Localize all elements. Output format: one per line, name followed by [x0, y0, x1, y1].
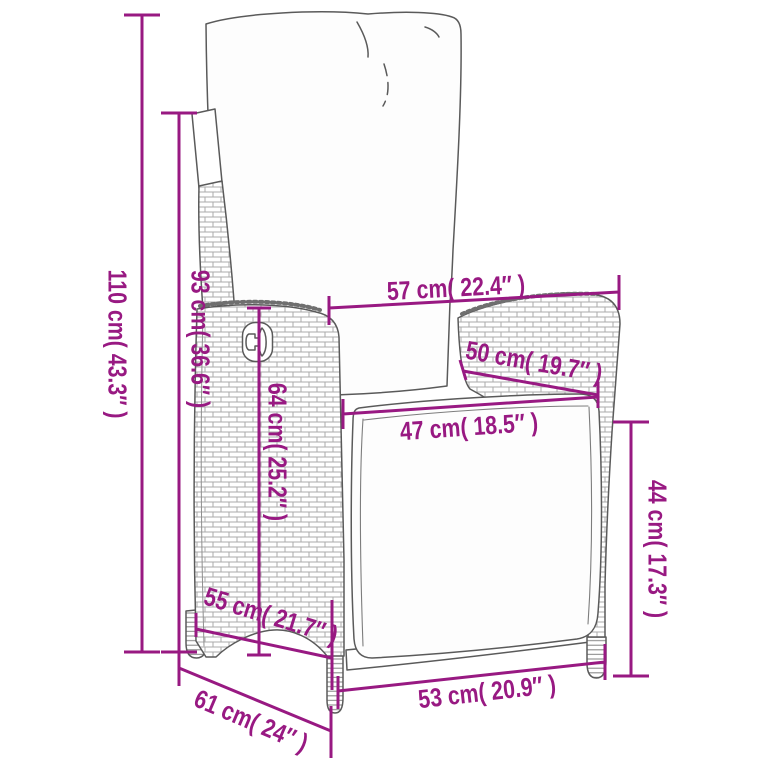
dimension-diagram: 110 cm( 43.3″ ) 93 cm( 36.6″ ) 57 cm( 22…	[0, 0, 767, 767]
dim-label-seat-height: 44 cm( 17.3″ )	[642, 480, 673, 618]
dim-label-side-height: 64 cm( 25.2″ )	[262, 383, 293, 521]
dim-label-back-height: 93 cm( 36.6″ )	[185, 270, 216, 408]
leg-front-right	[587, 637, 606, 678]
dim-label-total-height: 110 cm( 43.3″ )	[102, 270, 133, 419]
